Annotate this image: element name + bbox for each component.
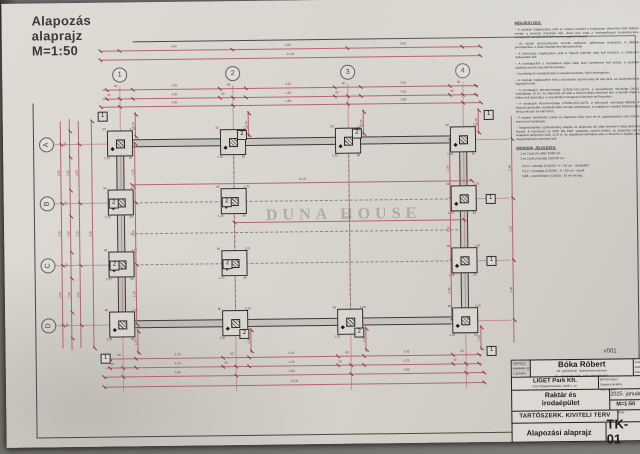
dimension-tick — [98, 58, 102, 62]
date-scale-cell: 2025. január M=1:50 — [609, 389, 640, 409]
dimension-chain: 1,20 — [365, 326, 366, 351]
dimension-tick — [482, 380, 486, 384]
dimension-chain: 1,20 — [137, 329, 138, 354]
material-item: P1,2 = pontalap (C25/30) · h = 60 cm · v… — [522, 168, 640, 173]
dimension-label: 2,50 — [132, 230, 135, 236]
dimension-label: 1,20 — [332, 154, 338, 157]
strip-foundation-bottom — [109, 316, 478, 329]
copyright-cell: A terv szerzői jog- védelem alatt áll, m… — [633, 359, 640, 375]
drawing-sheet: Alapozás alaprajz M=1:50 1 2 3 4 A B C D… — [1, 0, 640, 448]
dimension-label: 30 — [335, 91, 338, 94]
dimension-tick — [477, 361, 481, 365]
dimension-label: 1,20 — [217, 156, 223, 159]
dimension-label: 1,20 — [104, 157, 110, 160]
dimension-tick — [117, 49, 121, 53]
dimension-chain: 603,45603,45603,4560 — [106, 354, 482, 360]
dimension-tick — [474, 84, 478, 88]
grid-row-c: C — [40, 258, 55, 273]
dimension-label: 1,20 — [245, 121, 248, 127]
dimension-tick — [359, 85, 363, 89]
dimension-label: 4,80 — [285, 100, 291, 103]
dimension-tick — [478, 53, 482, 57]
footing-column — [115, 139, 124, 148]
dimension-label: 1,20 — [105, 216, 111, 219]
dimension-label: 4,80 — [175, 371, 181, 374]
dimension-tick — [134, 135, 138, 139]
dimension-label: 60 — [130, 216, 133, 219]
dimension-label: 2,35 — [132, 169, 135, 175]
dimension-label: 60 — [333, 306, 336, 309]
footing-column — [346, 317, 355, 326]
client-cell: LIGET Park Kft. 2310 Szigetszentmiklós, … — [512, 377, 598, 390]
page-title-line1: Alapozás — [31, 13, 91, 29]
dimension-tick — [93, 346, 97, 350]
dimension-tick — [70, 276, 74, 280]
centerline-horizontal — [130, 198, 458, 203]
dimension-tick — [362, 363, 366, 367]
dimension-tick — [102, 375, 106, 379]
dimension-label: 1,20 — [106, 338, 112, 341]
dimension-label: 60 — [472, 153, 475, 156]
dimension-chain: 2,953,103,00 — [511, 116, 515, 343]
grid-row-a: A — [39, 137, 54, 152]
dimension-tick — [105, 97, 109, 101]
dimension-label: 2,35 — [447, 166, 450, 172]
dimension-tick — [135, 263, 139, 267]
note-item: Az épület tartószerkezete monolit vasbet… — [515, 40, 639, 49]
dimension-tick — [137, 330, 141, 334]
dimension-tick — [470, 179, 474, 183]
strip-foundation-top — [107, 135, 476, 148]
notes-column: MEGJEGYZÉS: A munkák megkezdése előtt az… — [515, 20, 640, 357]
dimension-tick — [359, 94, 363, 98]
note-item: A betonozás megkezdése előtt a fogadó fe… — [515, 51, 639, 60]
dimension-label: 60 — [342, 82, 345, 85]
notes-header: MEGJEGYZÉS: — [515, 20, 639, 25]
dimension-tick — [510, 137, 514, 141]
drawing-title: Alapozási alaprajz — [512, 423, 605, 442]
client-name: LIGET Park Kft. — [514, 378, 596, 385]
footing-column — [461, 316, 470, 325]
dimension-label: 30 — [110, 363, 113, 366]
footing-type-label: 2 — [222, 259, 232, 269]
page-title-line3: M=1:50 — [32, 43, 92, 59]
dimension-label: 60 — [473, 212, 476, 215]
dimension-chain: 1,20 — [363, 110, 364, 136]
dimension-tick — [105, 88, 109, 92]
dimension-tick — [79, 263, 83, 267]
centerline-vertical — [233, 151, 236, 317]
dimension-tick — [218, 87, 222, 91]
dimension-tick — [336, 354, 340, 358]
dimension-tick — [480, 325, 484, 329]
dimension-chain: 4,804,804,80 — [100, 46, 480, 52]
dimension-tick — [90, 119, 94, 123]
centerline-horizontal — [130, 229, 458, 234]
dimension-label: 60 — [216, 127, 219, 130]
note-item: A talajvíz mértékadó szintje az alapozás… — [516, 115, 640, 124]
dimension-label: 60 — [345, 351, 348, 354]
dimension-label: 30 — [224, 362, 227, 365]
dimension-tick — [230, 47, 234, 51]
dimension-label: 4,20 — [175, 362, 181, 365]
centerline-vertical — [348, 150, 351, 316]
dimension-label: 4,80 — [171, 101, 177, 104]
dimension-chain: 603,45603,45603,4560 — [102, 85, 478, 91]
dimension-tick — [70, 250, 74, 254]
drawing-number: TK-01 — [605, 422, 640, 440]
dimension-label: 14,40 — [291, 380, 299, 383]
footing-type-label: 2 — [222, 197, 232, 207]
dimension-tick — [218, 96, 222, 100]
dimension-label: 60 — [460, 350, 463, 353]
dimension-tick — [247, 111, 251, 115]
grid-row-b: B — [40, 196, 55, 211]
dimension-label: 3,45 — [289, 352, 295, 355]
note-item: A pontalapok vasalását lásd a vasalási t… — [515, 71, 639, 76]
grid-column-1: 1 — [112, 67, 127, 82]
dimension-tick — [244, 86, 248, 90]
dimension-chain: 602,35602,50602,4060 — [69, 119, 73, 350]
dimension-tick — [102, 385, 106, 389]
dimension-label: 1,20 — [135, 339, 138, 345]
dimension-tick — [448, 84, 452, 88]
dimension-tick — [477, 108, 481, 112]
dimension-chain: 1,20 — [135, 112, 136, 138]
notes-list: A munkák megkezdése előtt az összes mére… — [515, 27, 640, 142]
dimension-tick — [477, 352, 481, 356]
dimension-chain: 1,20 — [480, 325, 481, 350]
footing-type-label: 2 — [239, 329, 249, 339]
watermark: DUNA HOUSE — [266, 205, 422, 225]
dimension-label: 3,00 — [510, 287, 513, 293]
dimension-tick — [362, 110, 366, 114]
dimension-label: 1,20 — [218, 215, 224, 218]
footing-type-label: 1 — [486, 194, 496, 204]
dimension-tick — [336, 363, 340, 367]
dimension-tick — [99, 105, 103, 109]
dimension-label: 1,20 — [334, 335, 340, 338]
dimension-label: 4,25 — [289, 361, 295, 364]
dimension-label: 4,25 — [400, 90, 406, 93]
drawing-scale: M=1:50 — [610, 400, 640, 410]
dimension-label: 60 — [103, 187, 106, 190]
dimension-tick — [244, 95, 248, 99]
dimension-label: 60 — [218, 308, 221, 311]
dimension-tick — [365, 327, 369, 331]
footing-type-label: 2 — [109, 199, 119, 209]
dimension-label: 60 — [242, 155, 245, 158]
dimension-chain: 14,10 — [132, 180, 472, 185]
dimension-label: 60 — [227, 84, 230, 87]
dimension-label: 60 — [64, 142, 67, 145]
dimension-label: 1,20 — [478, 335, 481, 341]
dimension-tick — [108, 366, 112, 370]
dimension-label: 60 — [105, 309, 108, 312]
dimension-label: 1,20 — [219, 277, 225, 280]
dimension-label: 60 — [357, 154, 360, 157]
dimension-label: 3,45 — [285, 83, 291, 86]
dimension-label: 60 — [230, 353, 233, 356]
dimension-label: 14,10 — [298, 178, 306, 181]
dimension-tick — [448, 93, 452, 97]
note-item: Talajmechanikai szakvélemény alapján az … — [516, 125, 640, 142]
material-item: S1,0 = sávalap (C16/20) · h = 40 cm · va… — [522, 163, 640, 168]
dimension-chain: 304,20304,25304,2530 — [102, 94, 478, 100]
dimension-tick — [71, 310, 75, 314]
grid-column-4: 4 — [455, 63, 470, 78]
dimension-tick — [362, 132, 366, 136]
dimension-label: 4,80 — [285, 44, 291, 47]
dimension-label: 60 — [103, 128, 106, 131]
dimension-chain: 304,20304,25304,2530 — [106, 363, 482, 369]
dimension-label: 60 — [217, 248, 220, 251]
dimension-label: 2,95 — [58, 170, 61, 176]
dimension-tick — [482, 370, 486, 374]
dimension-label: 1,20 — [449, 334, 455, 337]
page-title: Alapozás alaprajz M=1:50 — [31, 13, 91, 59]
dimension-tick — [480, 346, 484, 350]
dimension-label: 3,45 — [175, 353, 181, 356]
dimension-label: 2,95 — [509, 165, 512, 171]
designer-name: Bóka Róbert — [533, 360, 631, 369]
dimension-label: 2,50 — [447, 227, 450, 233]
dimension-chain: 1,20 — [248, 111, 249, 137]
dimension-tick — [134, 366, 138, 370]
dimension-label: 3,45 — [171, 84, 177, 87]
dimension-label: 9,05 — [89, 231, 92, 237]
page-title-line2: alaprajz — [32, 28, 92, 44]
dimension-label: 60 — [114, 85, 117, 88]
version-label: v001 — [604, 348, 617, 354]
dimension-label: 3,00 — [59, 292, 62, 298]
note-item: A pontalapok betonminősége C25/30-XC2-16… — [515, 87, 639, 100]
dimension-label: 60 — [129, 157, 132, 160]
dimension-chain: 9,05 — [91, 121, 95, 348]
dimension-label: 60 — [216, 186, 219, 189]
foundation-plan: 4,804,804,8014,40603,45603,45603,4560304… — [1, 0, 640, 4]
footing-type-label: 2 — [237, 130, 247, 140]
dimension-label: 30 — [450, 90, 453, 93]
dimension-label: 4,80 — [171, 45, 177, 48]
centerline-horizontal — [131, 260, 459, 265]
dimension-label: 60 — [243, 214, 246, 217]
note-item: A munkák megkezdése előtt az összes mére… — [515, 27, 639, 40]
dimension-tick — [474, 93, 478, 97]
dimension-label: 4,80 — [404, 368, 410, 371]
dimension-tick — [134, 357, 138, 361]
dimension-tick — [247, 364, 251, 368]
designer-cell: Bóka Róbert okl. építőmérnök · tartószer… — [530, 359, 633, 376]
dimension-label: 60 — [445, 124, 448, 127]
title-block: TERVEZŐ KAMARAI SZ. T-13-0000 Bóka Róber… — [511, 358, 640, 443]
footing-type-label: 1 — [487, 346, 497, 356]
dimension-label: 1,20 — [132, 122, 135, 128]
dimension-label: 4,80 — [400, 98, 406, 101]
dimension-label: 3,10 — [509, 226, 512, 232]
dimension-label: 3,00 — [77, 292, 80, 298]
dimension-chain: 1,20 — [478, 108, 479, 134]
footing-column — [118, 320, 127, 329]
site-cell: ÉPÍTÉSI HELY: Szigetszentmiklós, hrsz.: … — [598, 376, 640, 389]
footing-type-label: 2 — [354, 328, 364, 338]
dimension-label: 60 — [65, 201, 68, 204]
dimension-label: 60 — [243, 276, 246, 279]
dimension-chain: 4,804,804,80 — [101, 102, 481, 108]
footing-type-label: 1 — [484, 110, 494, 120]
dimension-tick — [478, 44, 482, 48]
materials-list: S1,0 = sávalap (C16/20) · h = 40 cm · va… — [518, 163, 640, 178]
dimension-label: 1,20 — [360, 120, 363, 126]
dimension-label: 30 — [107, 94, 110, 97]
grid-column-3: 3 — [340, 65, 355, 80]
footing-type-label: 1 — [101, 354, 111, 364]
dimension-label: 1,20 — [475, 118, 478, 124]
dimension-tick — [477, 130, 481, 134]
dimension-tick — [78, 201, 82, 205]
legend-item: 1 és 2 jelű pontalap 120/120 cm. — [520, 155, 640, 160]
dimension-tick — [134, 113, 138, 117]
dimension-tick — [98, 49, 102, 53]
dimension-chain: 1,20 — [250, 328, 251, 353]
footing-column — [459, 194, 468, 203]
dimension-label: 3,45 — [403, 350, 409, 353]
note-item: A munkák megkezdése előtt a közművek nyo… — [515, 77, 639, 86]
dimension-tick — [69, 155, 73, 159]
dimension-chain: 14,40 — [100, 55, 480, 61]
dimension-label: 30 — [221, 93, 224, 96]
material-item: SZB = szerelőbeton (C8/10) · 10 cm vasta… — [522, 173, 640, 178]
footing-type-label: 2 — [352, 129, 362, 139]
dimension-label: 60 — [65, 263, 68, 266]
dimension-tick — [68, 129, 72, 133]
dimension-tick — [333, 85, 337, 89]
dimension-tick — [479, 100, 483, 104]
dimension-tick — [511, 196, 515, 200]
dimension-label: 2,40 — [448, 288, 451, 294]
dimension-tick — [250, 349, 254, 353]
dimension-label: 2,35 — [67, 170, 70, 176]
dimension-tick — [333, 94, 337, 98]
footing-column — [460, 256, 469, 265]
dimension-tick — [247, 133, 251, 137]
dimension-chain: 14,40 — [104, 382, 484, 388]
dimension-tick — [451, 353, 455, 357]
grid-row-d: D — [41, 318, 56, 333]
dimension-label: 60 — [330, 125, 333, 128]
legend-header: ANYAGOK, JELÖLÉSEK: — [516, 145, 640, 150]
dimension-chain: 4,804,804,80 — [104, 372, 484, 378]
dimension-label: 3,10 — [76, 231, 79, 237]
dimension-label: 60 — [104, 249, 107, 252]
frame-left-line — [33, 104, 38, 439]
dimension-tick — [69, 214, 73, 218]
dimension-label: 4,25 — [404, 359, 410, 362]
dimension-label: 60 — [130, 278, 133, 281]
dimension-label: 2,40 — [68, 292, 71, 298]
dimension-label: 4,20 — [171, 93, 177, 96]
dimension-tick — [221, 365, 225, 369]
dimension-label: 3,10 — [58, 231, 61, 237]
dimension-label: 60 — [473, 274, 476, 277]
scanned-page: Alapozás alaprajz M=1:50 1 2 3 4 A B C D… — [0, 0, 640, 454]
grid-column-2: 2 — [225, 66, 240, 81]
dimension-tick — [513, 318, 517, 322]
dimension-tick — [131, 88, 135, 92]
stamp-cell: TERVEZŐ KAMARAI SZ. T-13-0000 — [512, 360, 530, 376]
dimension-label: 2,95 — [76, 170, 79, 176]
dimension-tick — [345, 46, 349, 50]
note-item: A munkagödröt a munkálatok teljes ideje … — [515, 61, 639, 70]
dimension-chain: 2,953,103,00 — [60, 121, 64, 348]
dimension-label: 60 — [66, 323, 69, 326]
footing-type-label: 1 — [486, 256, 496, 266]
dimension-label: 30 — [338, 360, 341, 363]
dimension-tick — [69, 188, 73, 192]
dimension-tick — [131, 97, 135, 101]
dimension-tick — [247, 355, 251, 359]
dimension-tick — [250, 328, 254, 332]
dimension-chain: 2,953,103,00 — [78, 121, 82, 348]
dimension-label: 4,80 — [289, 370, 295, 373]
project-cell: Raktár és irodaépület — [512, 390, 609, 411]
dimension-tick — [512, 258, 516, 262]
phase-cell: TARTÓSZERK. KIVITELI TERV — [512, 410, 617, 422]
dimension-label: 3,45 — [400, 81, 406, 84]
dimension-label: 2,40 — [133, 291, 136, 297]
footing-column — [458, 135, 467, 144]
dimension-label: 60 — [117, 354, 120, 357]
dimension-label: 4,25 — [285, 92, 291, 95]
dimension-label: 4,80 — [400, 42, 406, 45]
dimension-tick — [221, 356, 225, 360]
dimension-label: 14,40 — [287, 53, 295, 56]
dimension-tick — [137, 351, 141, 355]
dimension-tick — [362, 354, 366, 358]
dimension-label: 1,20 — [106, 278, 112, 281]
note-item: A sávalapok betonminősége C25/30-XC2-16-… — [516, 101, 640, 114]
dimension-label: 60 — [457, 81, 460, 84]
dimension-tick — [71, 336, 75, 340]
dimension-tick — [451, 362, 455, 366]
footing-type-label: 2 — [109, 261, 119, 271]
footing-column — [231, 319, 240, 328]
dimension-label: 2,50 — [67, 231, 70, 237]
legend-list: 1 és 2 jelű vb. pillér 40/40 cm.1 és 2 j… — [516, 150, 640, 160]
dimension-tick — [460, 45, 464, 49]
dimension-label: 1,20 — [219, 337, 225, 340]
dimension-label: 30 — [453, 359, 456, 362]
dimension-tick — [365, 348, 369, 352]
footing-type-label: 1 — [98, 112, 108, 122]
